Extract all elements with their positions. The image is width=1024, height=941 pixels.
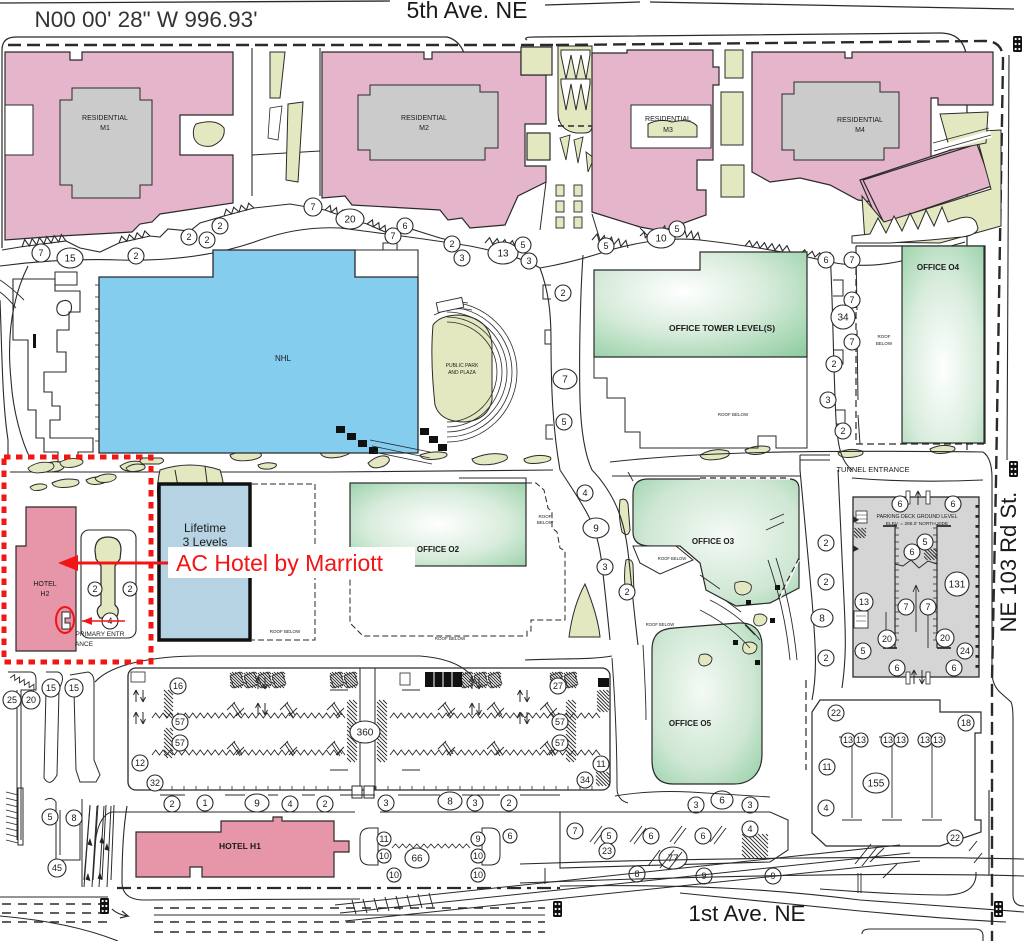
svg-text:5: 5	[606, 831, 611, 841]
svg-text:2: 2	[624, 587, 629, 597]
svg-text:3: 3	[602, 562, 607, 572]
svg-text:18: 18	[961, 718, 971, 728]
svg-text:7: 7	[903, 602, 908, 612]
svg-text:M1: M1	[100, 125, 110, 132]
svg-text:ROOF BELOW: ROOF BELOW	[270, 629, 301, 634]
svg-text:10: 10	[655, 234, 667, 245]
svg-text:5: 5	[922, 537, 927, 547]
svg-text:HOTEL H1: HOTEL H1	[219, 841, 261, 851]
svg-text:5: 5	[561, 417, 566, 427]
svg-text:2: 2	[169, 799, 174, 809]
svg-text:131: 131	[949, 580, 966, 591]
svg-text:8: 8	[71, 813, 76, 823]
svg-text:6: 6	[894, 663, 899, 673]
svg-text:M3: M3	[663, 127, 673, 134]
svg-text:HOTEL: HOTEL	[33, 581, 56, 588]
svg-text:M2: M2	[419, 125, 429, 132]
svg-text:7: 7	[849, 337, 854, 347]
svg-text:2: 2	[840, 426, 845, 436]
svg-text:OFFICE TOWER LEVEL(S): OFFICE TOWER LEVEL(S)	[669, 323, 775, 333]
svg-text:4: 4	[582, 488, 587, 498]
svg-text:6: 6	[648, 831, 653, 841]
svg-text:N00 00' 28" W 996.93': N00 00' 28" W 996.93'	[35, 7, 258, 32]
svg-text:9: 9	[254, 799, 260, 810]
svg-text:3: 3	[459, 253, 464, 263]
svg-text:6: 6	[402, 221, 407, 231]
svg-text:6: 6	[700, 831, 705, 841]
svg-text:22: 22	[831, 708, 841, 718]
svg-text:RESIDENTIAL: RESIDENTIAL	[645, 116, 691, 123]
svg-text:13: 13	[896, 735, 906, 745]
svg-text:7: 7	[849, 295, 854, 305]
svg-text:H2: H2	[41, 591, 50, 598]
svg-text:OFFICE O3: OFFICE O3	[692, 537, 735, 546]
svg-text:3: 3	[472, 798, 477, 808]
svg-text:45: 45	[52, 863, 62, 873]
svg-text:5th Ave. NE: 5th Ave. NE	[406, 0, 527, 23]
svg-text:Lifetime: Lifetime	[184, 521, 226, 535]
svg-text:7: 7	[849, 255, 854, 265]
svg-text:8: 8	[447, 797, 453, 808]
svg-text:9: 9	[701, 871, 706, 881]
svg-text:8: 8	[634, 869, 639, 879]
svg-text:2: 2	[823, 577, 828, 587]
svg-text:22: 22	[950, 833, 960, 843]
svg-text:16: 16	[173, 681, 183, 691]
svg-text:ROOF BELOW: ROOF BELOW	[658, 556, 686, 561]
svg-text:6: 6	[719, 796, 725, 807]
svg-text:3: 3	[526, 256, 531, 266]
svg-text:5: 5	[603, 241, 608, 251]
svg-text:10: 10	[473, 870, 483, 880]
svg-text:20: 20	[882, 634, 892, 644]
svg-text:20: 20	[344, 215, 356, 226]
svg-text:2: 2	[322, 799, 327, 809]
svg-text:ROOF BELOW: ROOF BELOW	[718, 412, 749, 417]
svg-text:13: 13	[497, 249, 509, 260]
svg-text:RESIDENTIAL: RESIDENTIAL	[837, 117, 883, 124]
svg-text:M4: M4	[855, 127, 865, 134]
svg-text:13: 13	[920, 735, 930, 745]
svg-text:2: 2	[133, 251, 138, 261]
svg-text:9: 9	[475, 834, 480, 844]
svg-text:57: 57	[175, 738, 185, 748]
svg-text:2: 2	[217, 221, 222, 231]
svg-text:PRIMARY ENTR: PRIMARY ENTR	[76, 631, 125, 638]
svg-text:10: 10	[379, 851, 389, 861]
svg-text:5: 5	[860, 646, 865, 656]
svg-text:ANCE: ANCE	[75, 641, 94, 648]
svg-text:ROOF BELOW: ROOF BELOW	[435, 636, 466, 641]
svg-text:5: 5	[47, 812, 52, 822]
svg-text:NE 103 Rd St.: NE 103 Rd St.	[996, 492, 1021, 633]
svg-text:10: 10	[389, 870, 399, 880]
svg-text:2: 2	[823, 538, 828, 548]
svg-text:TUNNEL ENTRANCE: TUNNEL ENTRANCE	[836, 465, 909, 474]
svg-text:24: 24	[960, 646, 970, 656]
svg-text:57: 57	[555, 738, 565, 748]
svg-text:13: 13	[933, 735, 943, 745]
svg-text:2: 2	[127, 584, 132, 594]
svg-text:6: 6	[909, 547, 914, 557]
svg-text:6: 6	[897, 499, 902, 509]
svg-text:15: 15	[46, 683, 56, 693]
svg-text:57: 57	[175, 717, 185, 727]
svg-text:AND PLAZA: AND PLAZA	[448, 370, 476, 376]
svg-text:RESIDENTIAL: RESIDENTIAL	[82, 115, 128, 122]
svg-text:5: 5	[520, 240, 525, 250]
svg-text:AC Hotel by Marriott: AC Hotel by Marriott	[176, 550, 384, 576]
svg-text:NHL: NHL	[275, 354, 292, 363]
svg-text:13: 13	[859, 597, 869, 607]
svg-text:15: 15	[64, 254, 76, 265]
svg-text:32: 32	[150, 778, 160, 788]
svg-text:2: 2	[449, 239, 454, 249]
svg-text:6: 6	[507, 831, 512, 841]
svg-text:6: 6	[950, 499, 955, 509]
svg-text:34: 34	[837, 313, 849, 324]
svg-text:6: 6	[951, 663, 956, 673]
svg-text:RESIDENTIAL: RESIDENTIAL	[401, 115, 447, 122]
svg-text:7: 7	[310, 202, 315, 212]
svg-text:4: 4	[823, 803, 828, 813]
svg-text:20: 20	[940, 633, 950, 643]
svg-text:12: 12	[135, 758, 145, 768]
svg-text:27: 27	[553, 681, 563, 691]
svg-text:3 Levels: 3 Levels	[183, 535, 228, 549]
svg-text:PARKING DECK GROUND LEVEL: PARKING DECK GROUND LEVEL	[877, 514, 958, 520]
svg-text:9: 9	[593, 524, 599, 535]
svg-text:2: 2	[186, 232, 191, 242]
svg-text:155: 155	[868, 779, 885, 790]
svg-text:OFFICE O5: OFFICE O5	[669, 719, 712, 728]
svg-text:BELOW: BELOW	[876, 341, 893, 346]
svg-text:20: 20	[26, 695, 36, 705]
svg-text:15: 15	[69, 683, 79, 693]
svg-text:4: 4	[747, 824, 752, 834]
svg-text:10: 10	[473, 851, 483, 861]
svg-text:5: 5	[674, 224, 679, 234]
svg-text:ROOF BELOW: ROOF BELOW	[646, 622, 674, 627]
svg-text:6: 6	[823, 255, 828, 265]
svg-text:ROOF: ROOF	[539, 514, 552, 519]
svg-text:7: 7	[390, 231, 395, 241]
svg-text:25: 25	[7, 695, 17, 705]
svg-text:7: 7	[562, 375, 568, 386]
svg-text:2: 2	[92, 584, 97, 594]
svg-text:1: 1	[202, 798, 207, 808]
svg-text:13: 13	[856, 735, 866, 745]
svg-text:3: 3	[747, 800, 752, 810]
svg-text:360: 360	[357, 728, 374, 739]
svg-text:2: 2	[560, 288, 565, 298]
svg-text:BELOW: BELOW	[537, 520, 554, 525]
svg-text:66: 66	[411, 854, 423, 865]
svg-text:13: 13	[883, 735, 893, 745]
svg-text:2: 2	[506, 798, 511, 808]
svg-text:PUBLIC PARK: PUBLIC PARK	[446, 363, 479, 369]
svg-text:3: 3	[825, 395, 830, 405]
svg-text:57: 57	[555, 717, 565, 727]
svg-text:7: 7	[572, 826, 577, 836]
svg-text:11: 11	[379, 834, 388, 844]
svg-text:3: 3	[693, 800, 698, 810]
svg-text:13: 13	[843, 735, 853, 745]
svg-text:3: 3	[383, 798, 388, 808]
svg-text:7: 7	[38, 248, 43, 258]
svg-text:4: 4	[287, 799, 292, 809]
svg-text:1st Ave. NE: 1st Ave. NE	[688, 901, 805, 926]
svg-text:OFFICE O2: OFFICE O2	[417, 545, 460, 554]
svg-text:ROOF: ROOF	[878, 334, 891, 339]
svg-text:8: 8	[819, 614, 825, 625]
svg-text:11: 11	[596, 759, 605, 769]
svg-text:OFFICE O4: OFFICE O4	[917, 263, 960, 272]
svg-text:7: 7	[925, 602, 930, 612]
svg-text:2: 2	[823, 653, 828, 663]
svg-text:2: 2	[204, 235, 209, 245]
svg-text:11: 11	[822, 762, 831, 772]
svg-text:23: 23	[602, 846, 612, 856]
svg-text:34: 34	[580, 775, 590, 785]
svg-text:2: 2	[831, 359, 836, 369]
